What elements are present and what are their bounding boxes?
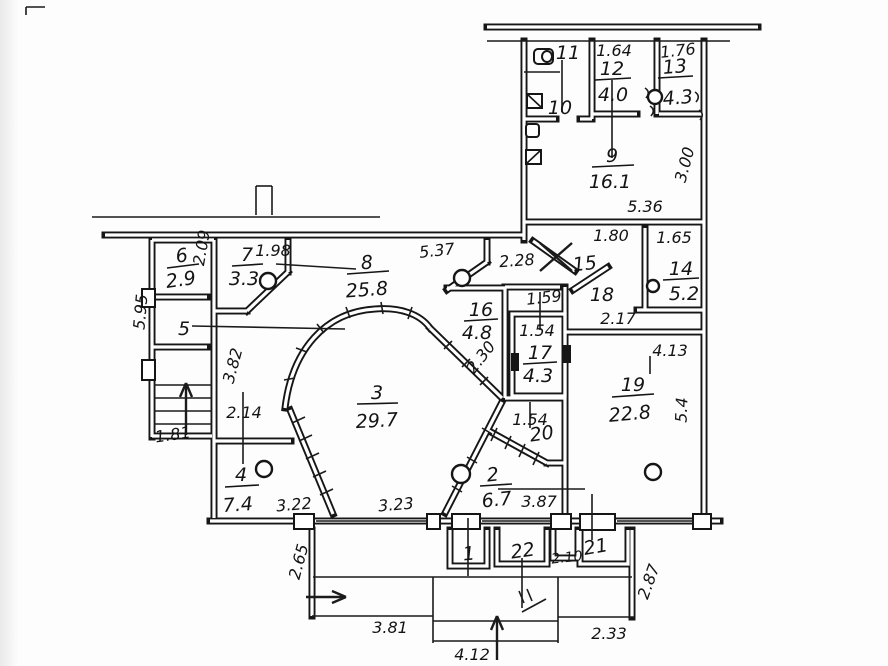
vent-circle [256, 461, 272, 477]
vent-circle [454, 270, 470, 286]
dim-1-98: 1.98 [255, 241, 291, 260]
room-15-number: 15 [572, 252, 598, 276]
kitchen-sink-icon [526, 150, 541, 164]
dim-5-95: 5.95 [129, 293, 151, 330]
room-labels: 1 2 6.7 3 29.7 4 7.4 5 6 2.9 7 3.3 8 25.… [164, 42, 699, 565]
room-3-number: 3 [371, 382, 383, 404]
dim-2-17: 2.17 [600, 309, 636, 328]
dim-4-13: 4.13 [652, 341, 688, 360]
vent-circle [647, 280, 659, 292]
room-3-area: 29.7 [355, 409, 398, 433]
room-14-number: 14 [669, 258, 693, 280]
room-19-area: 22.8 [608, 401, 652, 427]
balcony-up-arrow [491, 616, 503, 660]
room-13-area: 4.3 [662, 86, 694, 111]
room-2-area: 6.7 [481, 487, 513, 512]
room-2-number: 2 [486, 463, 500, 486]
wall-3-arc [285, 309, 430, 408]
dim-5-37: 5.37 [418, 239, 456, 262]
room-6-area: 2.9 [164, 267, 197, 293]
dim-1-54-lower: 1.54 [512, 410, 548, 429]
room-22-number: 22 [509, 538, 536, 563]
wall-3-arc [285, 309, 430, 408]
dim-3-00: 3.00 [671, 145, 699, 184]
room-1-number: 1 [462, 543, 476, 566]
dim-3-82: 3.82 [219, 346, 247, 385]
dim-5-4: 5.4 [672, 397, 692, 423]
room-12-area: 4.0 [598, 84, 628, 106]
vent-circle [260, 273, 276, 289]
room-4-number: 4 [235, 464, 247, 486]
room-14-area: 5.2 [669, 283, 699, 305]
dim-2-33: 2.33 [591, 624, 627, 643]
dim-3-81: 3.81 [372, 618, 408, 637]
dim-2-10: 2.10 [551, 548, 584, 567]
stove-icon [526, 124, 539, 137]
room-7-number: 7 [241, 244, 253, 266]
dim-2-87: 2.87 [634, 561, 664, 602]
dim-1-76: 1.76 [659, 39, 696, 62]
floor-plan-scan: 1 2 6.7 3 29.7 4 7.4 5 6 2.9 7 3.3 8 25.… [0, 0, 888, 666]
dim-1-64: 1.64 [596, 41, 632, 60]
floor-plan-drawing: 1 2 6.7 3 29.7 4 7.4 5 6 2.9 7 3.3 8 25.… [0, 0, 888, 666]
room-4-area: 7.4 [222, 493, 254, 517]
vent-circle [452, 465, 470, 483]
dim-1-59: 1.59 [525, 286, 562, 309]
dim-2-28: 2.28 [498, 250, 535, 271]
dim-1-65: 1.65 [656, 228, 692, 247]
vent-circle [648, 90, 662, 104]
room-8-area: 25.8 [345, 278, 389, 303]
dim-1-54-upper: 1.54 [519, 321, 555, 340]
dim-2-65: 2.65 [285, 542, 313, 581]
room-7-area: 3.3 [229, 268, 259, 290]
dim-1-81: 1.81 [154, 423, 192, 447]
room-5-number: 5 [178, 318, 190, 340]
door-swing-mark [650, 106, 653, 116]
sink-icon [527, 94, 542, 108]
dim-3-23: 3.23 [377, 493, 414, 515]
room-18-number: 18 [590, 284, 614, 306]
room-9-number: 9 [606, 145, 618, 167]
room-10-number: 10 [548, 97, 572, 119]
dim-3-22: 3.22 [275, 493, 312, 515]
dim-2-14: 2.14 [226, 403, 262, 422]
room-8-number: 8 [360, 252, 374, 275]
vent-circle [645, 464, 661, 480]
vent-shaft [562, 345, 571, 363]
room-16-number: 16 [469, 299, 493, 321]
room-11-number: 11 [556, 42, 580, 64]
room-9-area: 16.1 [589, 171, 631, 193]
room-19-number: 19 [621, 374, 645, 396]
toilet-icon [534, 49, 553, 64]
dim-1-80: 1.80 [593, 226, 629, 245]
room-21-number: 21 [582, 534, 610, 560]
room-17-number: 17 [528, 342, 552, 364]
dim-3-87: 3.87 [521, 492, 557, 511]
room-6-number: 6 [174, 244, 189, 267]
door-swing-mark [695, 92, 698, 102]
room-12-number: 12 [600, 58, 624, 80]
vent-shaft [511, 353, 519, 371]
dim-4-12: 4.12 [454, 645, 490, 664]
room-17-area: 4.3 [523, 365, 553, 387]
dim-5-36: 5.36 [627, 197, 663, 216]
